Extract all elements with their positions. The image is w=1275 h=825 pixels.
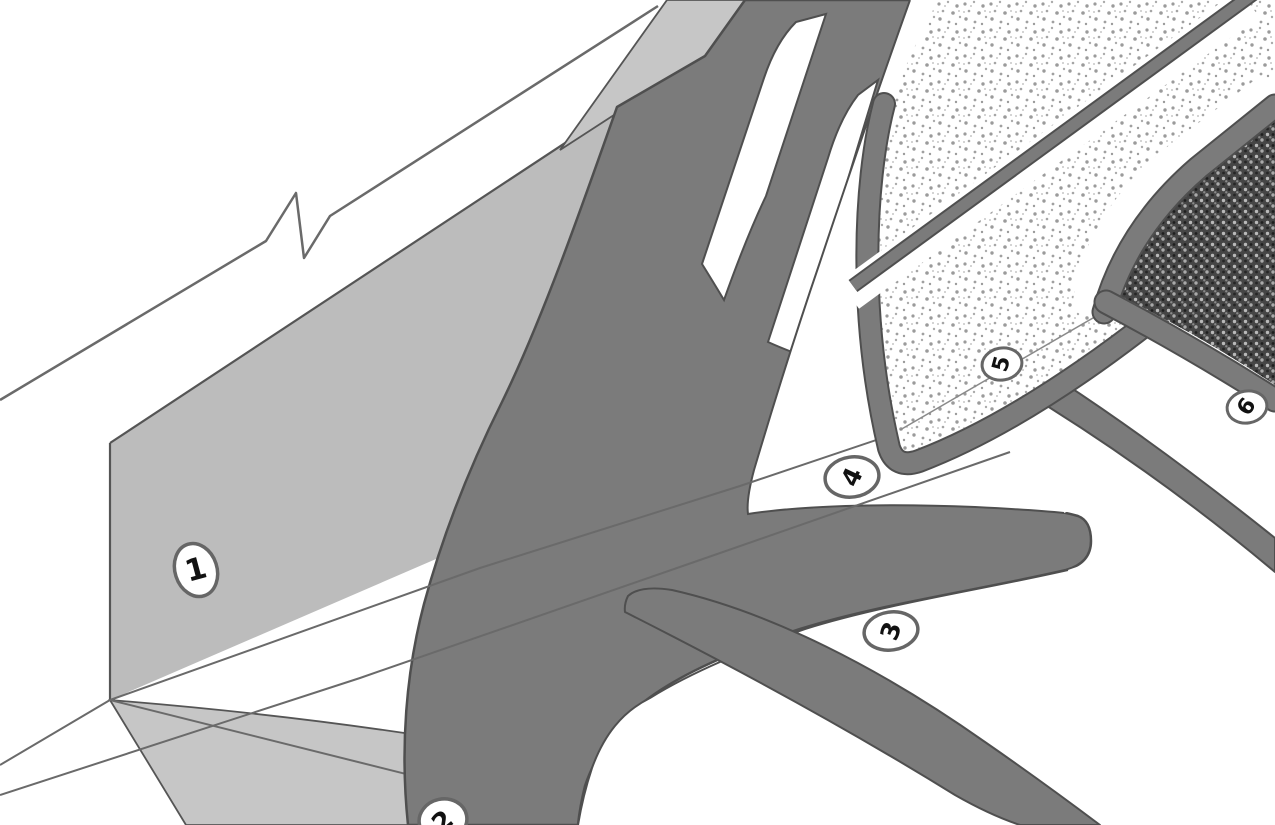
isometric-roof-parapet-diagram: 1 2 3 4 5 6 bbox=[0, 0, 1275, 825]
construction-detail-figure: 1 2 3 4 5 6 bbox=[0, 0, 1275, 825]
